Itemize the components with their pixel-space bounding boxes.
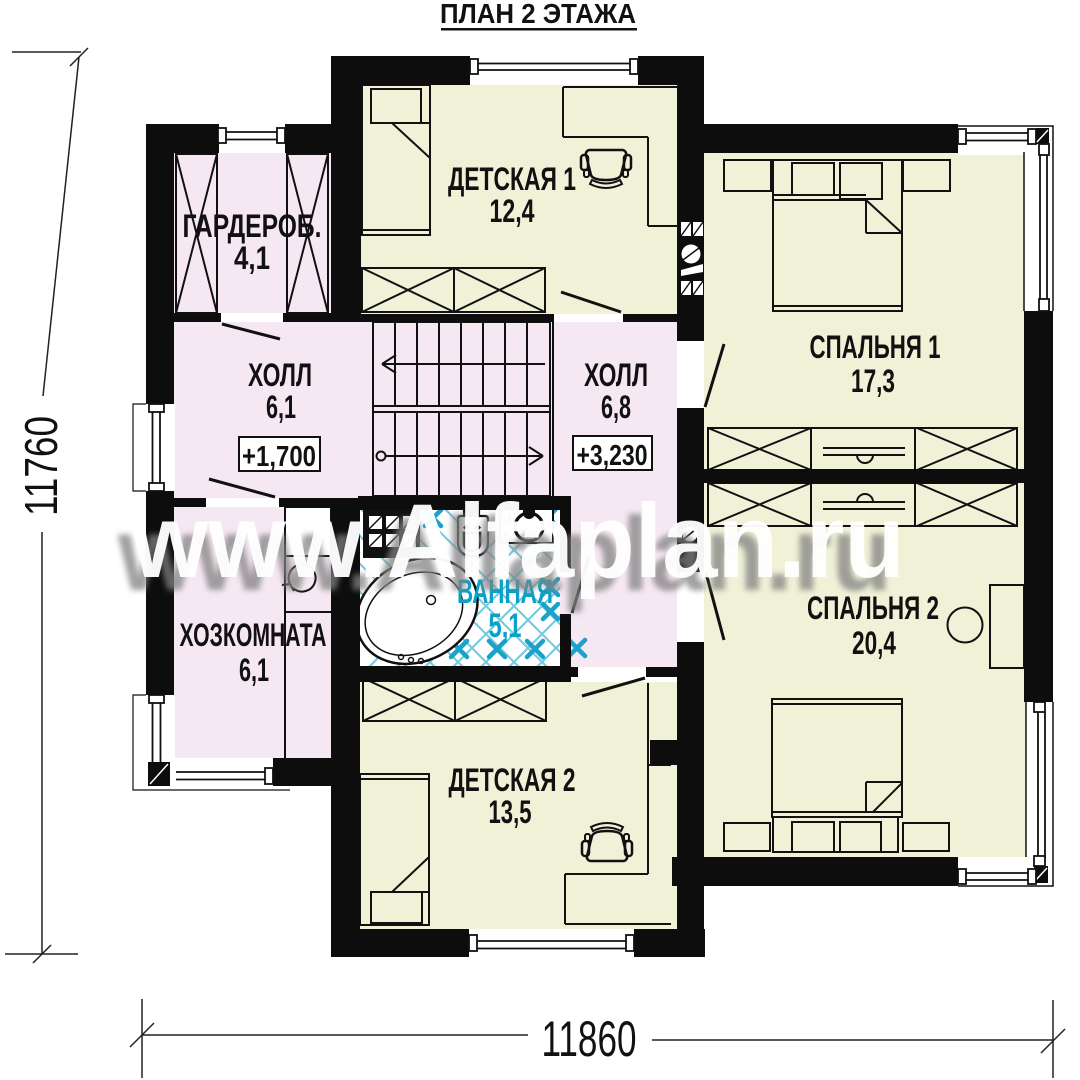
svg-text:ДЕТСКАЯ 1: ДЕТСКАЯ 1 bbox=[448, 161, 576, 197]
svg-text:ХОЛЛ: ХОЛЛ bbox=[248, 357, 312, 393]
svg-text:13,5: 13,5 bbox=[489, 794, 532, 830]
svg-text:6,8: 6,8 bbox=[601, 389, 631, 425]
svg-text:ХОЗКОМНАТА: ХОЗКОМНАТА bbox=[180, 617, 327, 653]
svg-text:+1,700: +1,700 bbox=[242, 441, 316, 473]
svg-text:20,4: 20,4 bbox=[852, 625, 896, 661]
svg-text:6,1: 6,1 bbox=[266, 389, 296, 425]
svg-text:6,1: 6,1 bbox=[239, 652, 269, 688]
svg-text:ДЕТСКАЯ 2: ДЕТСКАЯ 2 bbox=[449, 762, 576, 798]
svg-text:www.Alfaplan.ru: www.Alfaplan.ru bbox=[130, 483, 905, 600]
svg-text:4,1: 4,1 bbox=[234, 240, 270, 276]
svg-text:ПЛАН 2 ЭТАЖА: ПЛАН 2 ЭТАЖА bbox=[440, 0, 636, 29]
svg-text:ГАРДЕРОБ.: ГАРДЕРОБ. bbox=[183, 208, 322, 244]
svg-text:11860: 11860 bbox=[542, 1011, 637, 1067]
svg-text:12,4: 12,4 bbox=[490, 193, 535, 229]
svg-text:17,3: 17,3 bbox=[851, 363, 895, 399]
svg-text:+3,230: +3,230 bbox=[577, 440, 648, 472]
svg-text:ХОЛЛ: ХОЛЛ bbox=[584, 357, 648, 393]
svg-text:11760: 11760 bbox=[15, 416, 67, 516]
svg-text:СПАЛЬНЯ 1: СПАЛЬНЯ 1 bbox=[810, 329, 941, 365]
